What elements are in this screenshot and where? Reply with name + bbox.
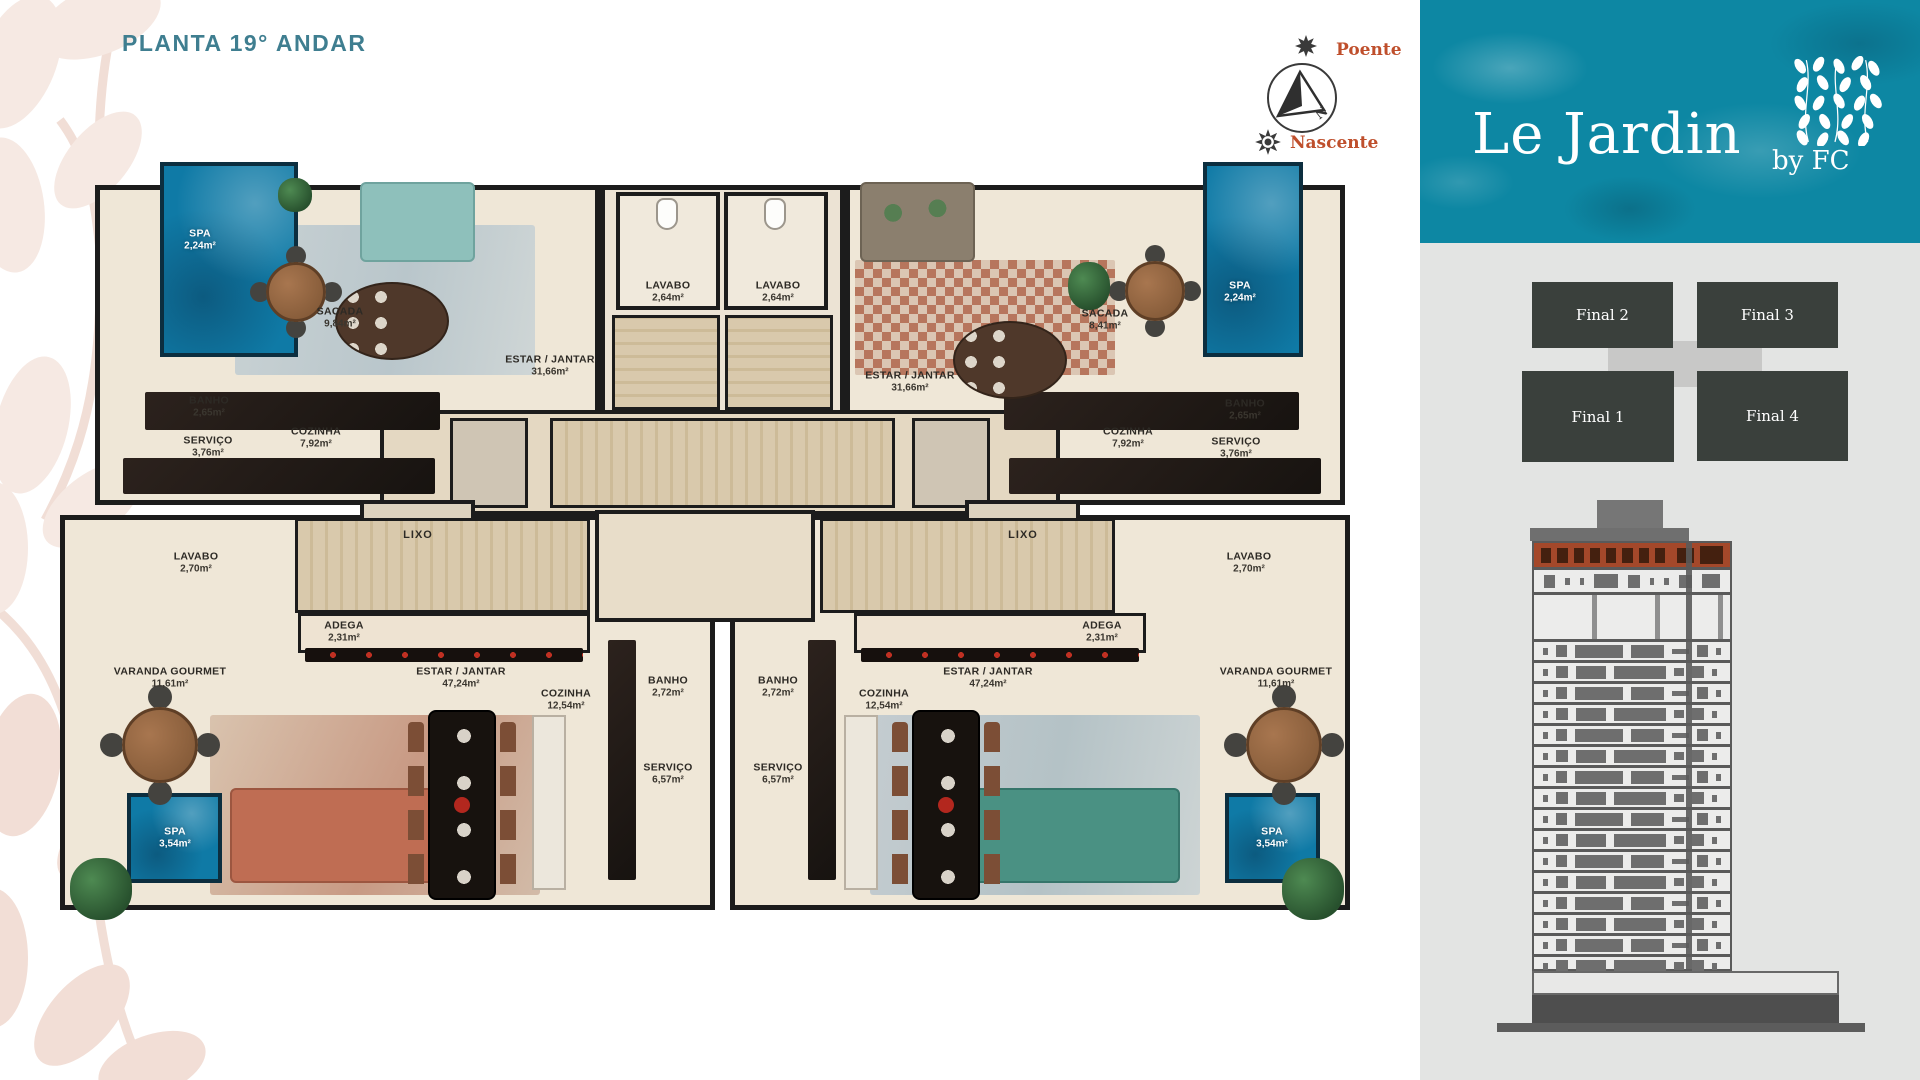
floor-plan: SPA 2,24m² SACADA 9,84m² ESTAR / JANTAR … <box>60 170 1350 910</box>
kitchen-counter <box>1009 458 1321 494</box>
key-plan-final-1[interactable]: Final 1 <box>1522 371 1674 462</box>
room-label-spa: SPA 3,54m² <box>1256 826 1288 851</box>
tower-body <box>1532 541 1732 971</box>
brochure-page: PLANTA 19° ANDAR N Poente Nascente <box>0 0 1920 1080</box>
dining-table <box>428 710 496 900</box>
key-plan-final-4[interactable]: Final 4 <box>1697 371 1848 461</box>
podium-lower <box>1532 995 1839 1023</box>
unit-top-right-stairs <box>725 315 833 410</box>
central-stairs <box>550 418 895 508</box>
floor-row <box>1534 891 1730 912</box>
room-label-lavabo: LAVABO 2,70m² <box>174 551 219 576</box>
room-label-cozinha: COZINHA 12,54m² <box>541 688 591 713</box>
unit-top-left-stairs <box>612 315 720 410</box>
room-label-lixo: LIXO <box>403 529 433 543</box>
floor-row <box>1534 912 1730 933</box>
key-plan-label: Final 3 <box>1741 306 1794 324</box>
key-plan-final-2[interactable]: Final 2 <box>1532 282 1673 348</box>
room-label-varanda-gourmet: VARANDA GOURMET 11,61m² <box>114 666 226 691</box>
floor-row <box>1534 702 1730 723</box>
sofa <box>860 182 975 262</box>
podium-upper <box>1532 971 1839 995</box>
room-label-servico: SERVIÇO 3,76m² <box>183 435 232 460</box>
floor-row <box>1534 681 1730 702</box>
room-label-banho: BANHO 2,65m² <box>189 395 229 420</box>
plant <box>1068 262 1110 310</box>
floor-row <box>1534 807 1730 828</box>
room-label-estar-jantar: ESTAR / JANTAR 47,24m² <box>943 666 1033 691</box>
room-label-servico: SERVIÇO 6,57m² <box>753 762 802 787</box>
floor-row <box>1534 567 1730 592</box>
floor-row <box>1534 660 1730 681</box>
plant <box>278 178 312 212</box>
room-label-banho: BANHO 2,65m² <box>1225 398 1265 423</box>
page-title: PLANTA 19° ANDAR <box>122 30 366 57</box>
room-label-sacada: SACADA 8,41m² <box>1082 308 1129 333</box>
floor-row <box>1534 744 1730 765</box>
dining-table <box>953 321 1067 399</box>
lobby-row <box>1534 592 1730 639</box>
plant <box>70 858 132 920</box>
brand-name: Le Jardin <box>1472 102 1742 167</box>
tower-floors <box>1534 639 1730 975</box>
room-label-estar-jantar: ESTAR / JANTAR 47,24m² <box>416 666 506 691</box>
kitchen-island <box>532 715 566 890</box>
room-label-sacada: SACADA 9,84m² <box>317 306 364 331</box>
room-label-lavabo: LAVABO 2,64m² <box>756 280 801 305</box>
floor-row <box>1534 849 1730 870</box>
roof-slab <box>1530 528 1689 541</box>
toilet-icon <box>764 198 786 230</box>
entry-hall <box>595 510 815 622</box>
room-label-cozinha: COZINHA 12,54m² <box>859 688 909 713</box>
unit-bottom-left-stairs <box>295 518 590 613</box>
leaf-logo-icon <box>1792 56 1882 146</box>
kitchen-counter <box>808 640 836 880</box>
kitchen-counter <box>608 640 636 880</box>
sofa <box>360 182 475 262</box>
kitchen-counter <box>123 458 435 494</box>
floor-row <box>1534 765 1730 786</box>
kitchen-island <box>844 715 878 890</box>
floor-row <box>1534 870 1730 891</box>
balcony-table <box>1125 261 1185 321</box>
dining-chairs <box>892 722 908 892</box>
sun-poente-icon <box>1294 34 1318 58</box>
room-label-servico: SERVIÇO 6,57m² <box>643 762 692 787</box>
room-label-cozinha: COZINHA 7,92m² <box>1103 426 1153 451</box>
wine-rack <box>861 648 1139 662</box>
floor-row <box>1534 786 1730 807</box>
room-label-estar-jantar: ESTAR / JANTAR 31,66m² <box>865 370 955 395</box>
room-label-banho: BANHO 2,72m² <box>758 675 798 700</box>
elevator-shaft <box>450 418 528 508</box>
wine-rack <box>305 648 583 662</box>
key-plan-label: Final 4 <box>1746 407 1799 425</box>
dining-chairs <box>500 722 516 892</box>
penthouse-block <box>1597 500 1663 528</box>
plant <box>1282 858 1344 920</box>
elevator-shaft <box>912 418 990 508</box>
toilet-icon <box>656 198 678 230</box>
gourmet-table <box>1246 707 1322 783</box>
room-label-lavabo: LAVABO 2,70m² <box>1227 551 1272 576</box>
key-plan-label: Final 1 <box>1572 408 1625 426</box>
unit-bottom-right-stairs <box>820 518 1115 613</box>
compass-west-label: Poente <box>1336 40 1402 60</box>
room-label-spa: SPA 2,24m² <box>1224 280 1256 305</box>
dining-chairs <box>408 722 424 892</box>
floor-row <box>1534 828 1730 849</box>
room-label-spa: SPA 2,24m² <box>184 228 216 253</box>
key-plan-label: Final 2 <box>1576 306 1629 324</box>
room-label-servico: SERVIÇO 3,76m² <box>1211 436 1260 461</box>
compass-east-label: Nascente <box>1290 133 1378 153</box>
brand-byline: by FC <box>1772 146 1850 176</box>
sun-nascente-icon <box>1254 128 1282 156</box>
tower-divider <box>1686 543 1692 969</box>
room-label-estar-jantar: ESTAR / JANTAR 31,66m² <box>505 354 595 379</box>
room-label-lixo: LIXO <box>1008 529 1038 543</box>
dining-table <box>912 710 980 900</box>
room-label-adega: ADEGA 2,31m² <box>324 620 363 645</box>
floor-row <box>1534 723 1730 744</box>
room-label-banho: BANHO 2,72m² <box>648 675 688 700</box>
key-plan-final-3[interactable]: Final 3 <box>1697 282 1838 348</box>
room-label-lavabo: LAVABO 2,64m² <box>646 280 691 305</box>
room-label-varanda-gourmet: VARANDA GOURMET 11,61m² <box>1220 666 1332 691</box>
ground-line <box>1497 1023 1865 1032</box>
gourmet-table <box>122 707 198 783</box>
dining-chairs <box>984 722 1000 892</box>
floor-row <box>1534 933 1730 954</box>
spa-pool <box>1203 162 1303 357</box>
room-label-spa: SPA 3,54m² <box>159 826 191 851</box>
highlighted-floor-band <box>1534 543 1730 567</box>
floor-row <box>1534 639 1730 660</box>
brand-header: Le Jardin by FC <box>1420 0 1920 243</box>
room-label-cozinha: COZINHA 7,92m² <box>291 426 341 451</box>
room-label-adega: ADEGA 2,31m² <box>1082 620 1121 645</box>
